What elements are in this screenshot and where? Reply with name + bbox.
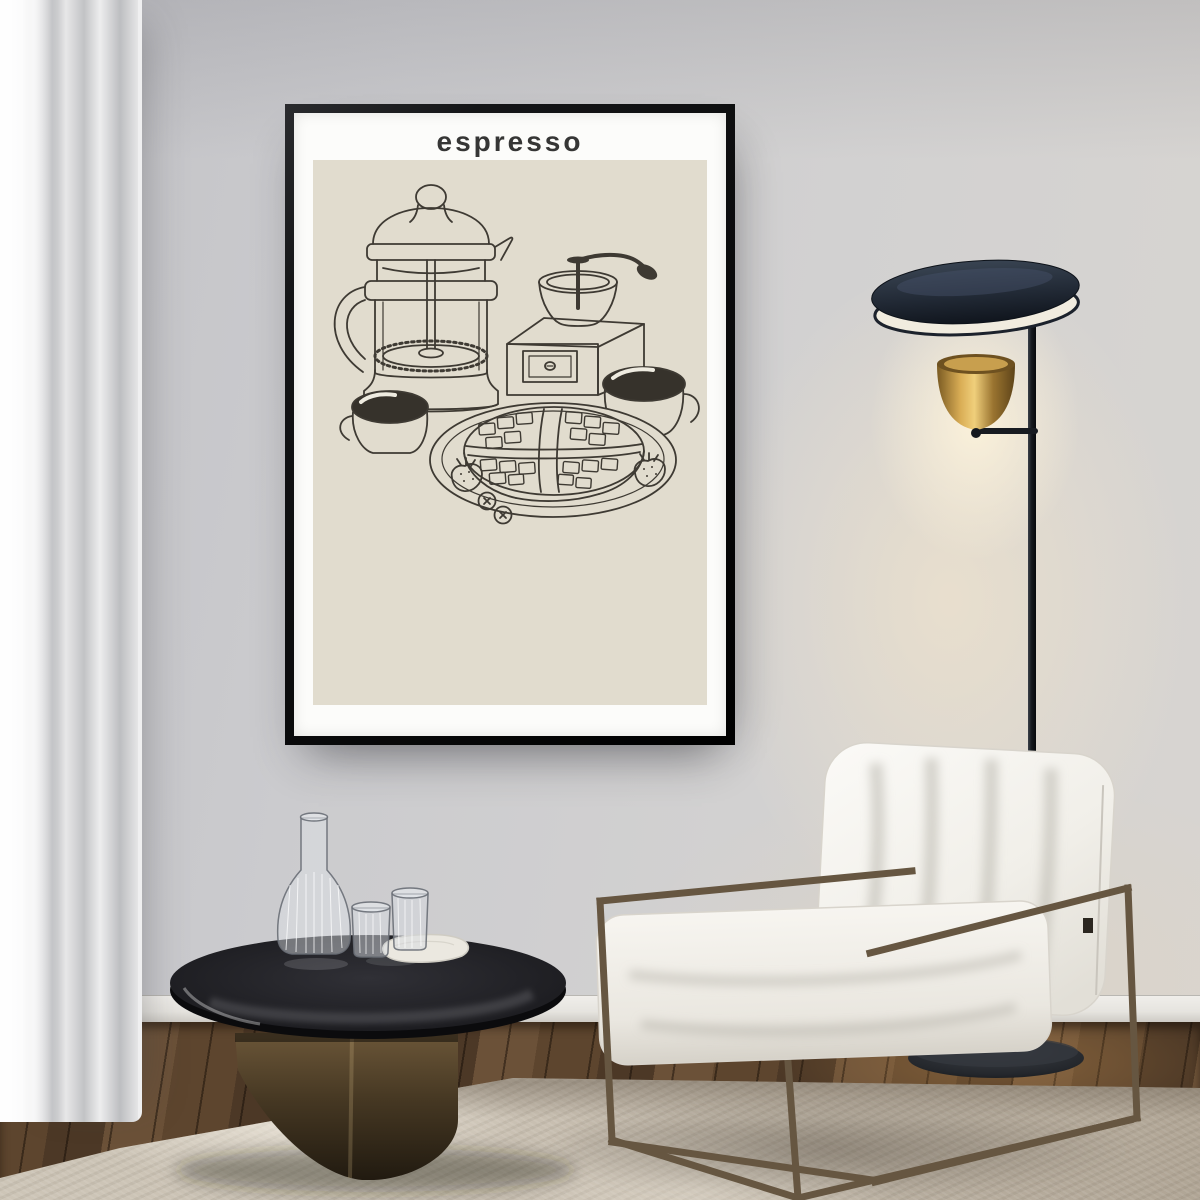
poster-artwork xyxy=(313,160,707,705)
french-press-illustration xyxy=(335,185,513,412)
lamp-bulb-holder xyxy=(937,354,1015,438)
chair-rear-leg xyxy=(788,1062,798,1198)
poster-title: espresso xyxy=(437,124,584,160)
chair-cross-brace xyxy=(798,1120,1130,1198)
lamp-arm xyxy=(976,428,1038,434)
curtain xyxy=(0,0,142,1122)
chair-cross-brace xyxy=(612,1142,872,1180)
armchair xyxy=(570,718,1160,1200)
poster-mat: espresso xyxy=(294,113,726,736)
coffee-cup-left-illustration xyxy=(340,391,428,453)
espresso-poster: espresso xyxy=(285,104,735,745)
chair-fabric-tag xyxy=(1083,918,1093,933)
living-room-scene: espresso xyxy=(0,0,1200,1200)
poster-panel xyxy=(313,160,707,705)
chair-right-front-post xyxy=(1128,888,1137,1118)
lamp-shade xyxy=(870,254,1083,341)
glass-carafe xyxy=(278,813,351,954)
coffee-table xyxy=(140,790,610,1200)
